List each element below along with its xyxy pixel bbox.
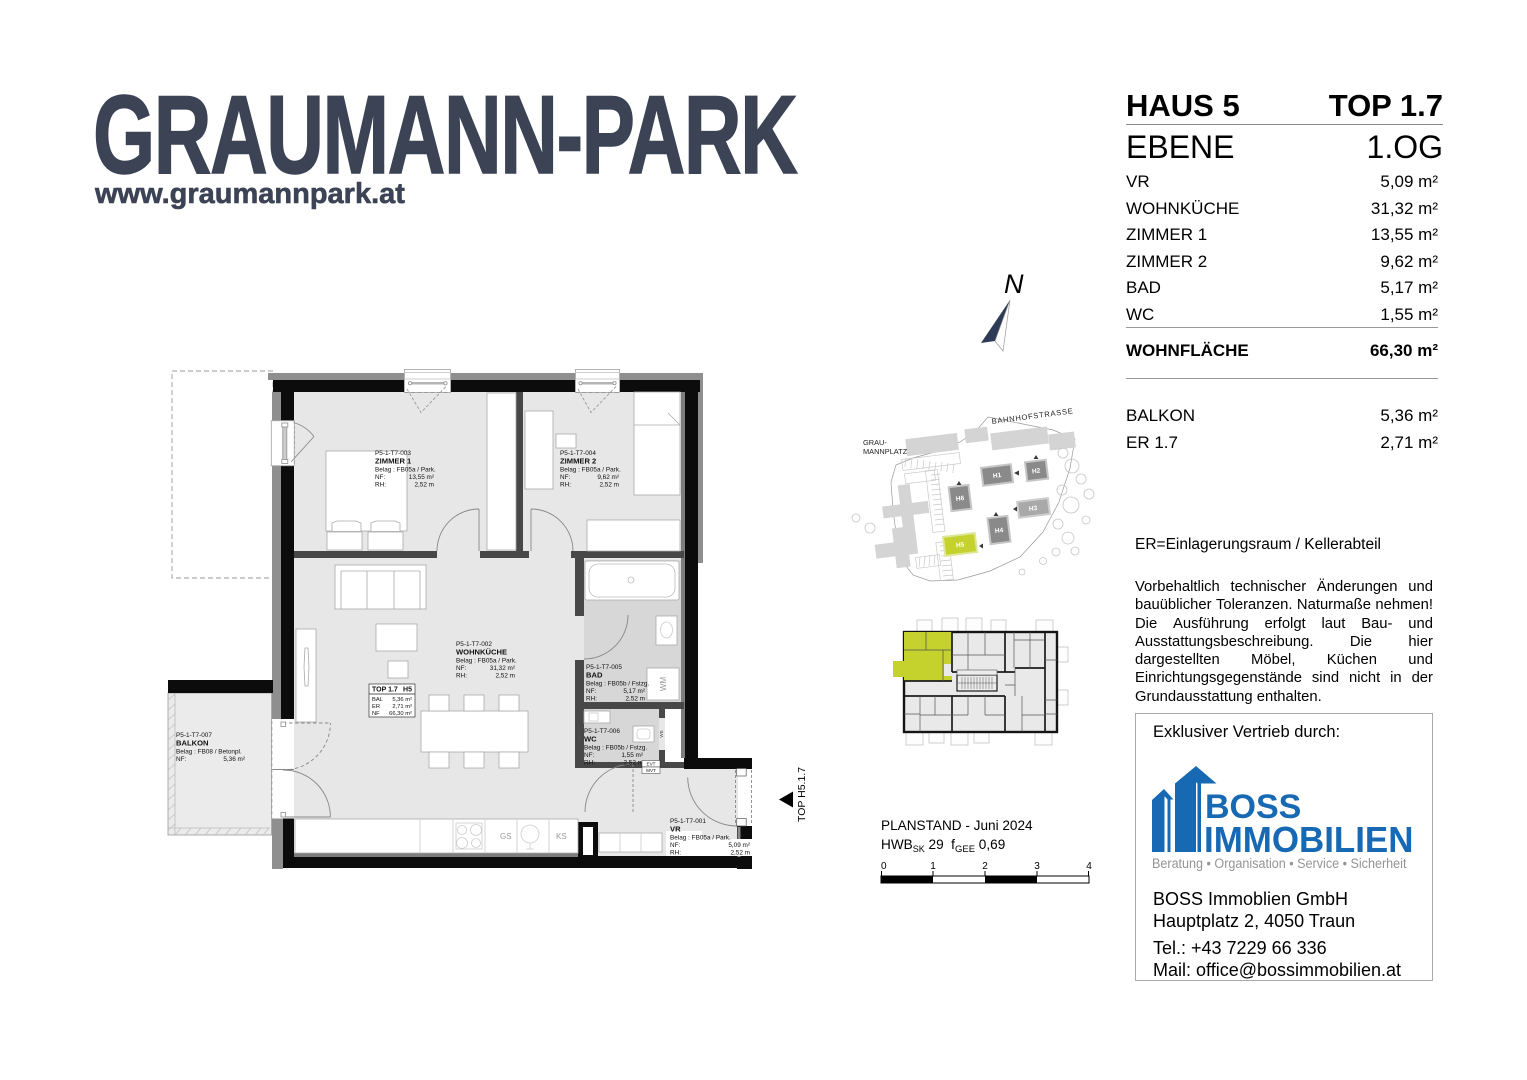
svg-text:Belag : FB05a / Park.: Belag : FB05a / Park. — [375, 467, 436, 474]
svg-text:VR: VR — [670, 825, 681, 834]
svg-text:RH:: RH: — [584, 760, 595, 767]
svg-text:4: 4 — [1086, 861, 1092, 872]
svg-text:NF:: NF: — [584, 752, 595, 759]
svg-text:2,52 m: 2,52 m — [623, 760, 643, 767]
svg-text:H2: H2 — [1032, 467, 1041, 475]
svg-text:2,52 m: 2,52 m — [625, 696, 645, 703]
svg-text:WOHNKÜCHE: WOHNKÜCHE — [456, 648, 507, 657]
svg-text:N: N — [1004, 269, 1024, 299]
svg-text:NF:: NF: — [375, 474, 386, 481]
svg-text:Belag : FB05b / Fstzg.: Belag : FB05b / Fstzg. — [584, 745, 647, 752]
svg-text:H5: H5 — [403, 687, 412, 694]
svg-text:31,32 m²: 31,32 m² — [490, 665, 515, 672]
svg-text:66,30 m²: 66,30 m² — [389, 711, 412, 717]
svg-text:GS: GS — [500, 832, 512, 841]
svg-text:Belag : FB05a / Park.: Belag : FB05a / Park. — [456, 658, 517, 665]
svg-text:2,52 m: 2,52 m — [599, 482, 619, 489]
svg-text:ER: ER — [372, 704, 380, 710]
svg-text:TOP H5.1.7: TOP H5.1.7 — [796, 767, 808, 822]
svg-text:EVT: EVT — [647, 762, 656, 767]
svg-text:13,55 m²: 13,55 m² — [409, 474, 434, 481]
svg-text:PLANSTAND - Juni 2024: PLANSTAND - Juni 2024 — [881, 818, 1033, 833]
svg-text:2,52 m: 2,52 m — [495, 673, 515, 680]
svg-text:2,71 m²: 2,71 m² — [392, 704, 412, 710]
svg-text:NF:: NF: — [670, 842, 681, 849]
svg-text:H6: H6 — [956, 495, 965, 503]
svg-text:HWBSK 29 fGEE 0,69: HWBSK 29 fGEE 0,69 — [881, 837, 1005, 855]
svg-text:H5: H5 — [956, 541, 965, 549]
svg-text:ZIMMER 2: ZIMMER 2 — [560, 457, 596, 466]
svg-text:0: 0 — [881, 861, 887, 872]
svg-text:1,55 m²: 1,55 m² — [621, 752, 643, 759]
svg-text:NF:: NF: — [176, 756, 187, 763]
svg-text:5,17 m²: 5,17 m² — [623, 688, 645, 695]
svg-text:ZIMMER 1: ZIMMER 1 — [375, 457, 412, 466]
svg-text:RH:: RH: — [560, 482, 571, 489]
svg-text:NF:: NF: — [586, 688, 597, 695]
svg-text:Belag : FB05b / Fstzg.: Belag : FB05b / Fstzg. — [586, 681, 649, 688]
svg-text:BAL: BAL — [372, 697, 384, 703]
svg-text:FBH VT: FBH VT — [577, 727, 582, 742]
svg-text:WB: WB — [659, 730, 664, 737]
svg-text:BAHNHOFSTRASSE: BAHNHOFSTRASSE — [991, 406, 1074, 426]
svg-text:RH:: RH: — [586, 696, 597, 703]
svg-text:WC: WC — [584, 735, 597, 744]
svg-text:GRAU-: GRAU- — [863, 438, 887, 447]
svg-text:2,52 m: 2,52 m — [414, 482, 434, 489]
svg-text:3: 3 — [1034, 861, 1040, 872]
svg-text:H3: H3 — [1029, 505, 1038, 513]
svg-text:2: 2 — [982, 861, 988, 872]
svg-text:NF:: NF: — [560, 474, 571, 481]
svg-text:WM: WM — [659, 677, 668, 692]
svg-text:RH:: RH: — [456, 673, 467, 680]
svg-text:NF: NF — [372, 711, 380, 717]
svg-text:5,09 m²: 5,09 m² — [728, 842, 750, 849]
svg-text:H1: H1 — [993, 472, 1002, 480]
svg-text:1: 1 — [930, 861, 936, 872]
svg-text:RH:: RH: — [375, 482, 386, 489]
svg-text:Belag : FB08 / Betonpl.: Belag : FB08 / Betonpl. — [176, 749, 242, 756]
svg-text:RH:: RH: — [670, 850, 681, 857]
svg-text:BALKON: BALKON — [176, 739, 208, 748]
svg-text:Belag : FB05a / Park.: Belag : FB05a / Park. — [560, 467, 621, 474]
svg-text:5,36 m²: 5,36 m² — [223, 756, 245, 763]
svg-text:MANNPLATZ: MANNPLATZ — [863, 447, 908, 456]
svg-text:9,62 m²: 9,62 m² — [597, 474, 619, 481]
svg-text:NF:: NF: — [456, 665, 467, 672]
svg-text:2,52 m: 2,52 m — [730, 850, 750, 857]
svg-text:BAD: BAD — [586, 671, 603, 680]
svg-text:Belag : FB05a / Park.: Belag : FB05a / Park. — [670, 835, 731, 842]
svg-text:H4: H4 — [995, 527, 1004, 535]
svg-text:TOP 1.7: TOP 1.7 — [372, 687, 398, 694]
svg-text:MVT: MVT — [646, 768, 656, 773]
svg-text:5,36 m²: 5,36 m² — [392, 697, 412, 703]
svg-text:KS: KS — [556, 832, 567, 841]
